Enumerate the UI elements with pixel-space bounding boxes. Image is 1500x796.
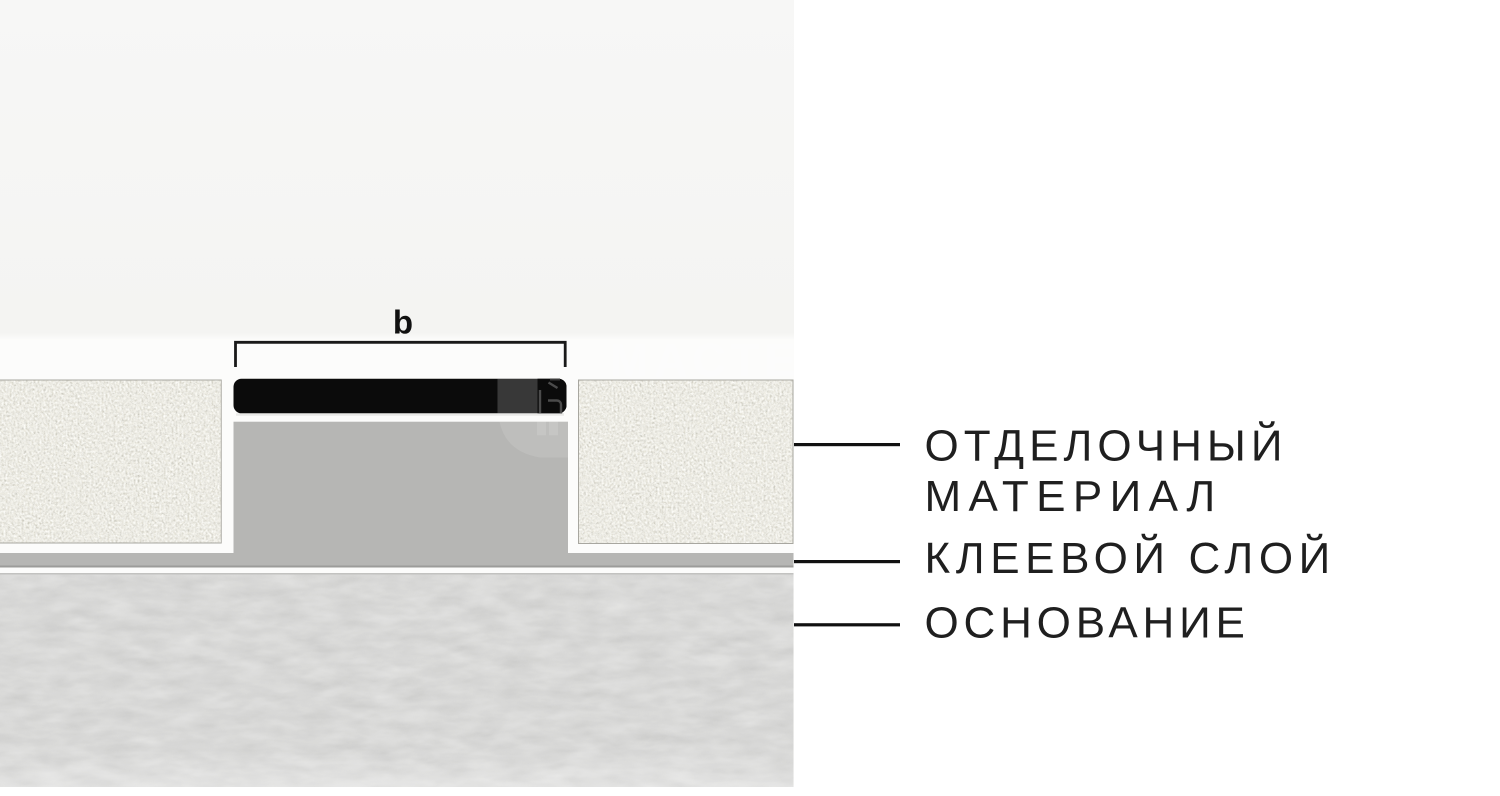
svg-text:b: b — [393, 304, 413, 341]
svg-text:КЛЕЕВОЙ СЛОЙ: КЛЕЕВОЙ СЛОЙ — [925, 532, 1336, 583]
svg-text:ОТДЕЛОЧНЫЙ: ОТДЕЛОЧНЫЙ — [925, 420, 1288, 471]
svg-text:МАТЕРИАЛ: МАТЕРИАЛ — [925, 472, 1223, 521]
svg-text:МАСТЕРА: МАСТЕРА — [610, 334, 873, 386]
svg-text:ОСНОВАНИЕ: ОСНОВАНИЕ — [925, 599, 1250, 648]
